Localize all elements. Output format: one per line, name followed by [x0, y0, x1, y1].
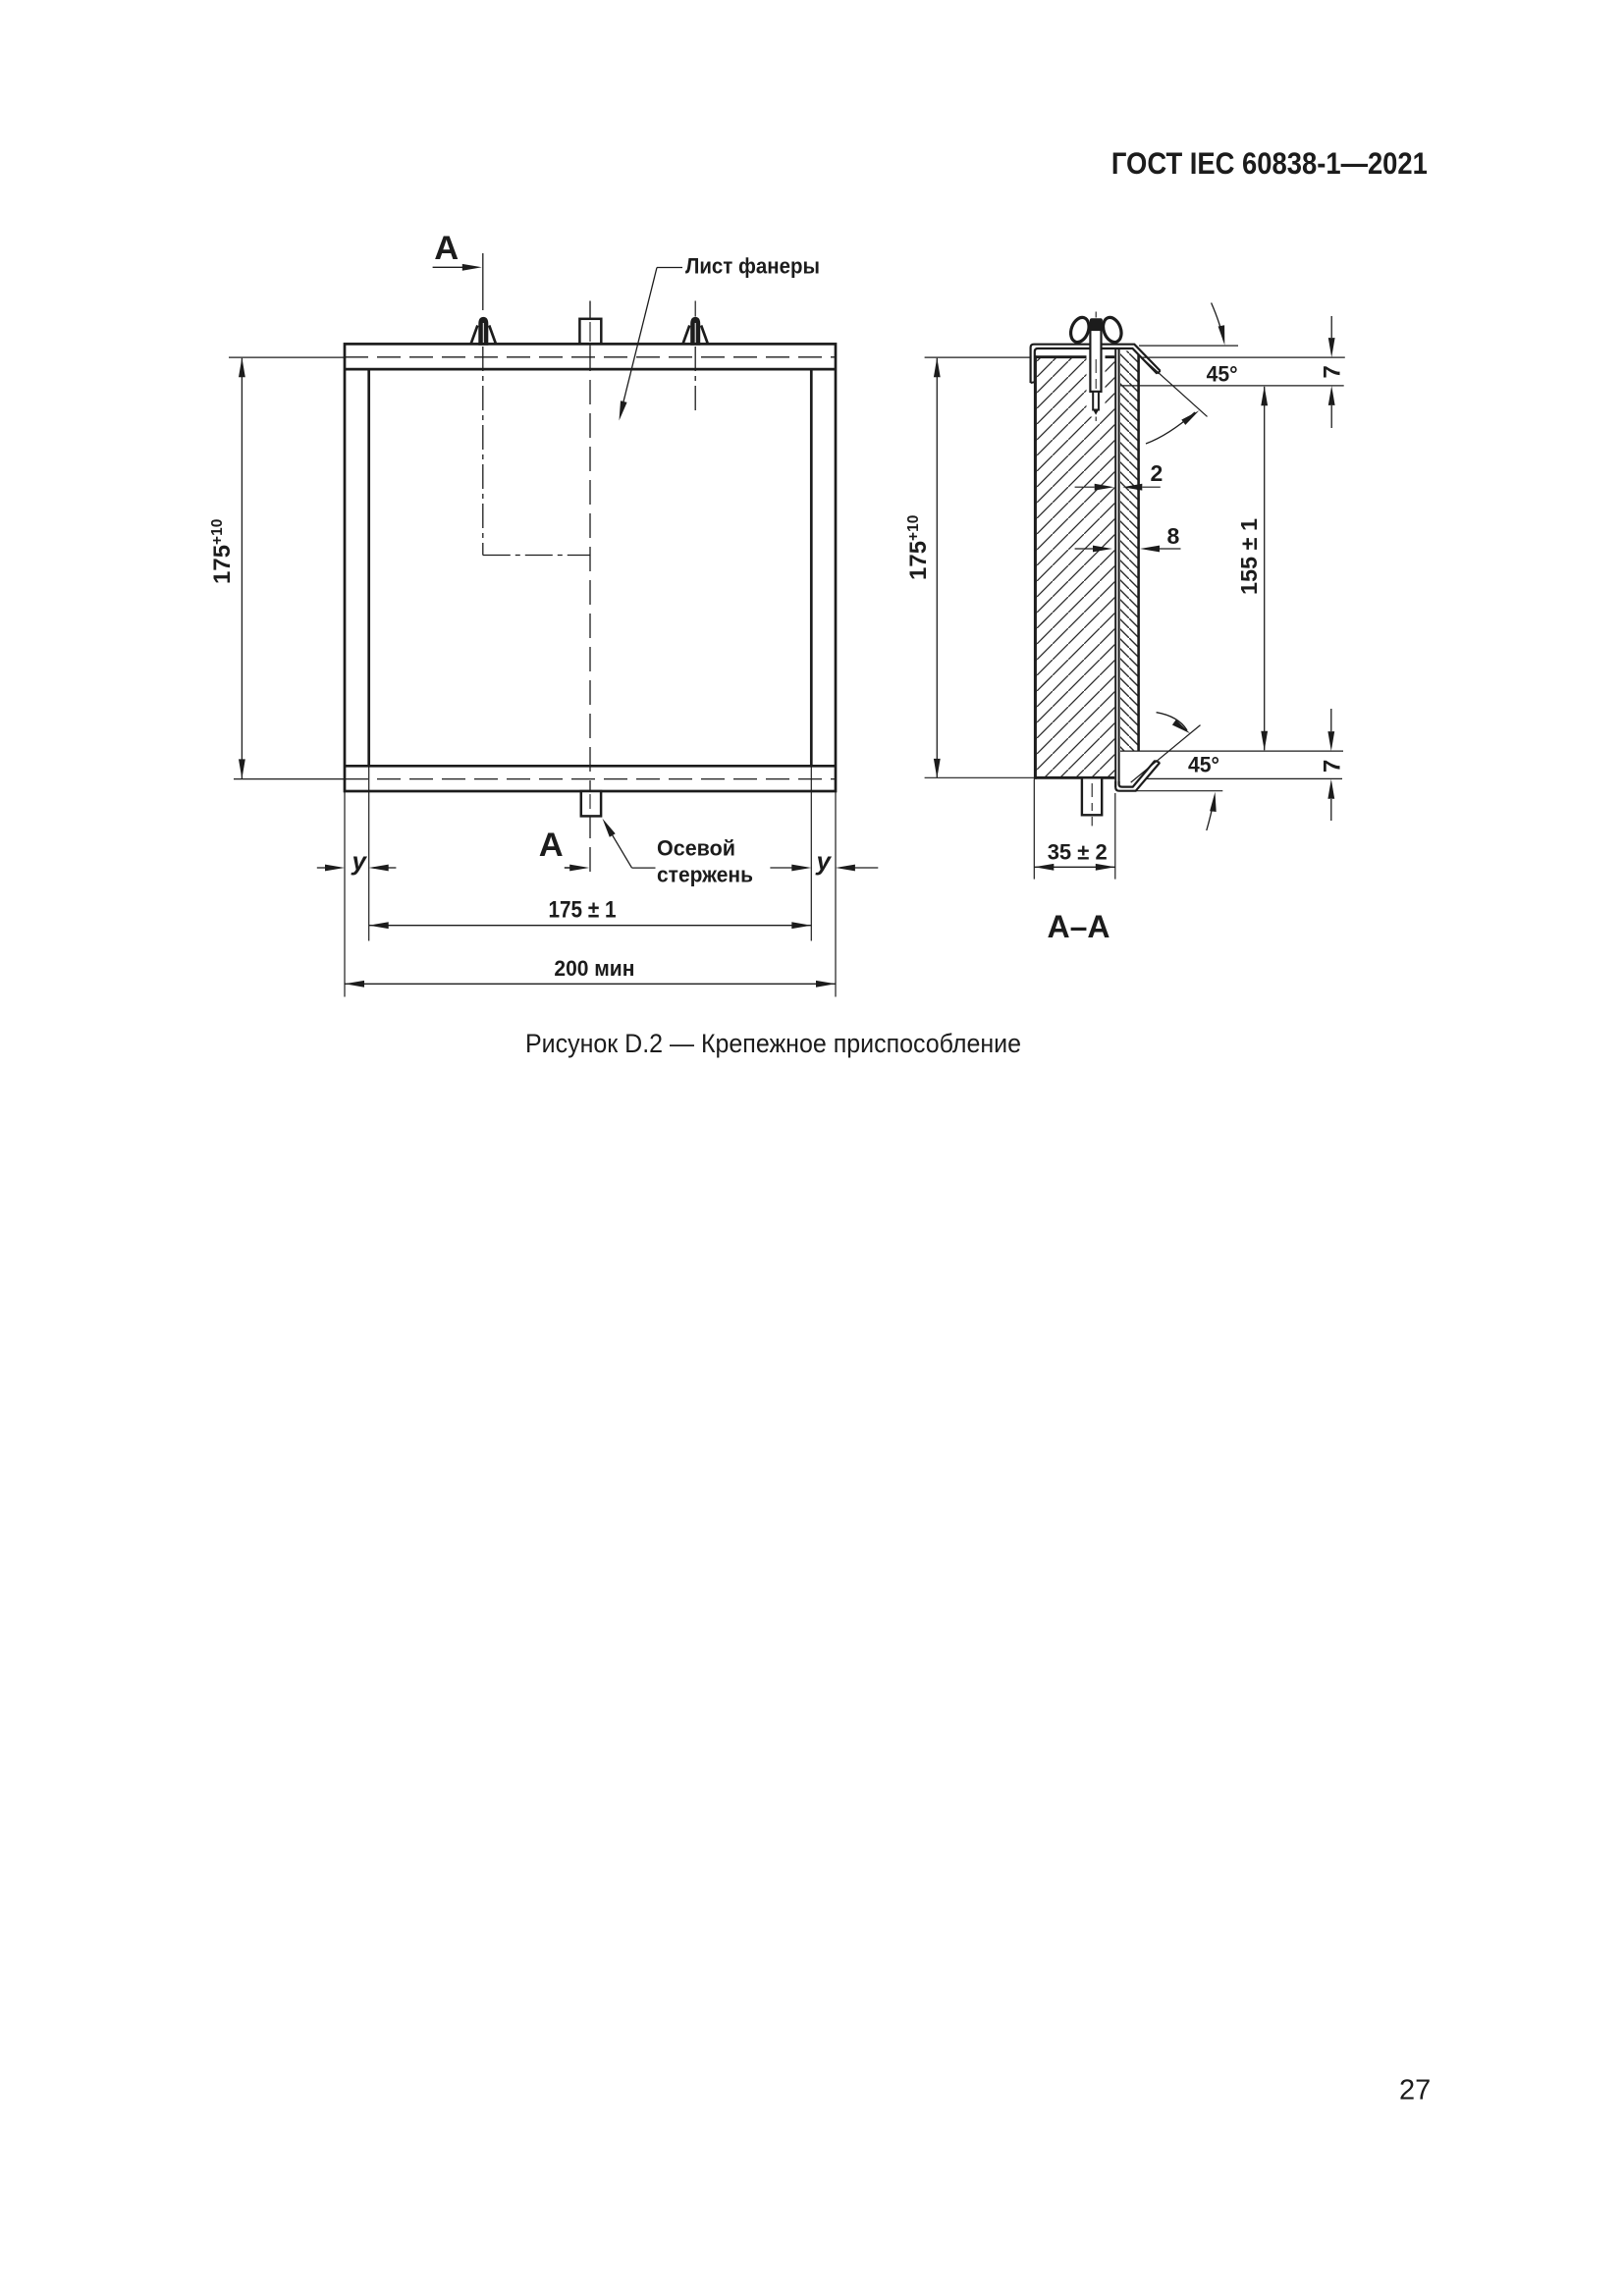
svg-text:7: 7: [1320, 760, 1346, 773]
svg-text:175+10: 175+10: [209, 519, 236, 584]
svg-text:8: 8: [1167, 523, 1180, 549]
svg-text:y: y: [815, 846, 833, 876]
svg-text:175 ± 1: 175 ± 1: [549, 897, 617, 924]
svg-text:Рисунок D.2 — Крепежное приспо: Рисунок D.2 — Крепежное приспособление: [525, 1029, 1021, 1058]
svg-text:200 мин: 200 мин: [554, 956, 634, 981]
svg-text:155 ± 1: 155 ± 1: [1236, 518, 1262, 595]
svg-text:А: А: [434, 230, 459, 267]
svg-text:35 ± 2: 35 ± 2: [1048, 840, 1108, 865]
svg-text:А–А: А–А: [1048, 909, 1110, 944]
svg-text:27: 27: [1399, 2075, 1431, 2107]
svg-text:Осевой: Осевой: [657, 836, 735, 861]
svg-text:45°: 45°: [1207, 362, 1238, 387]
svg-text:7: 7: [1320, 365, 1346, 378]
svg-text:Лист фанеры: Лист фанеры: [685, 254, 820, 279]
svg-text:ГОСТ IEC 60838-1—2021: ГОСТ IEC 60838-1—2021: [1111, 145, 1428, 181]
svg-text:y: y: [351, 846, 368, 876]
svg-text:175+10: 175+10: [905, 515, 932, 580]
svg-text:45°: 45°: [1188, 753, 1219, 777]
svg-text:А: А: [539, 827, 564, 864]
svg-text:2: 2: [1151, 460, 1164, 486]
svg-text:стержень: стержень: [657, 863, 753, 887]
